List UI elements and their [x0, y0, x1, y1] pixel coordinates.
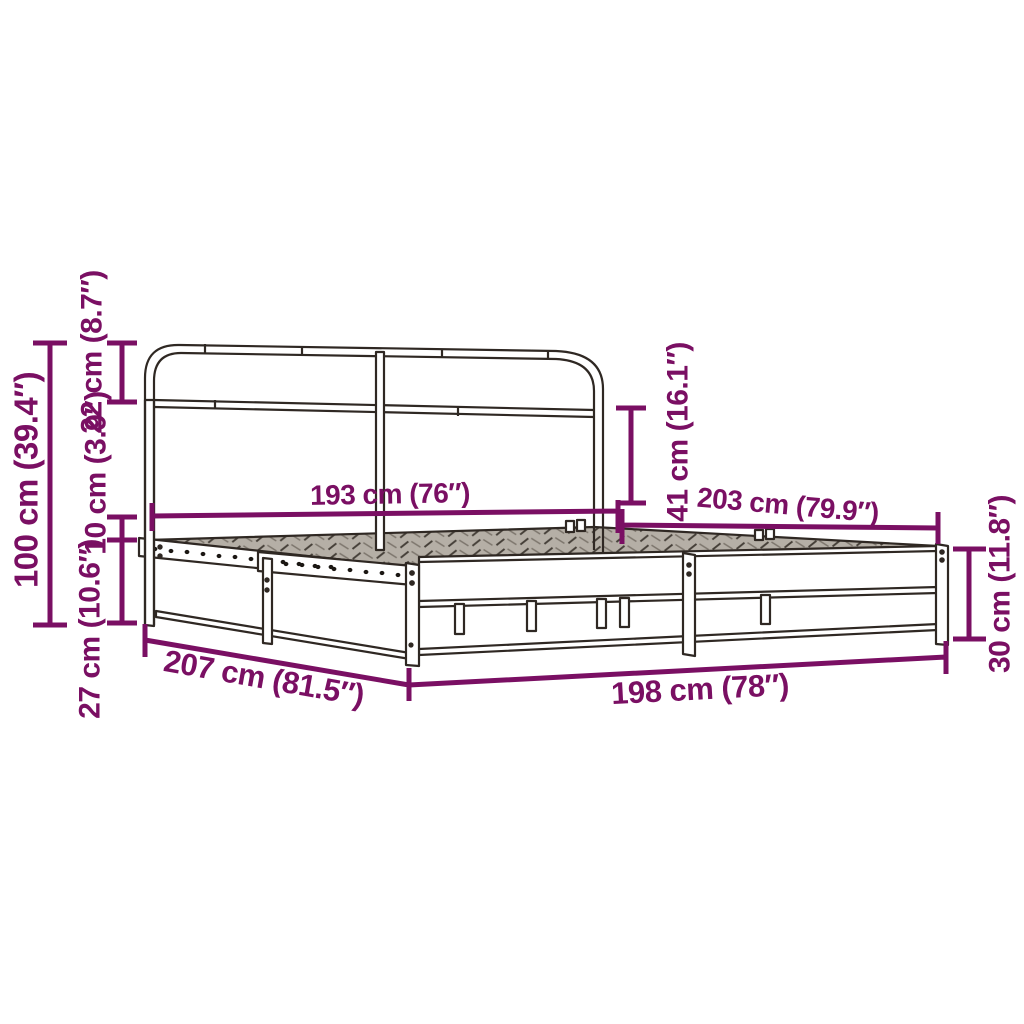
dimension-diagram: 100 cm (39.4″) 22 cm (8.7″) 10 cm (3.9″)… — [0, 0, 1024, 1024]
headboard-crossbar — [154, 400, 594, 417]
dim-label-headboard-width: 193 cm (76″) — [310, 477, 470, 511]
dim-label-total-height: 100 cm (39.4″) — [8, 372, 45, 588]
left-middle-leg — [263, 558, 272, 644]
dim-label-headboard-above-deck: 41 cm (16.1″) — [662, 342, 695, 522]
headboard-center-bar — [376, 352, 384, 550]
dim-label-under-bed-clearance: 27 cm (10.6″) — [74, 539, 107, 719]
dim-label-total-length: 207 cm (81.5″) — [161, 643, 367, 713]
dim-label-footboard-height: 30 cm (11.8″) — [984, 495, 1017, 673]
dim-total-height: 100 cm (39.4″) — [8, 343, 68, 625]
dim-under-bed-clearance: 27 cm (10.6″) — [74, 539, 138, 719]
dim-rail-height: 10 cm (3.9″) — [80, 391, 138, 554]
foot-middle-leg — [683, 553, 695, 656]
dim-footboard-height: 30 cm (11.8″) — [953, 495, 1017, 673]
bed-frame-diagram-svg: 100 cm (39.4″) 22 cm (8.7″) 10 cm (3.9″)… — [0, 0, 1024, 1024]
foot-lower-bar — [419, 624, 938, 655]
dim-headboard-above-deck: 41 cm (16.1″) — [616, 342, 695, 522]
dim-label-inner-length: 203 cm (79.9″) — [696, 482, 880, 529]
corner-leg — [406, 563, 419, 666]
dim-label-rail-height: 10 cm (3.9″) — [80, 391, 113, 554]
